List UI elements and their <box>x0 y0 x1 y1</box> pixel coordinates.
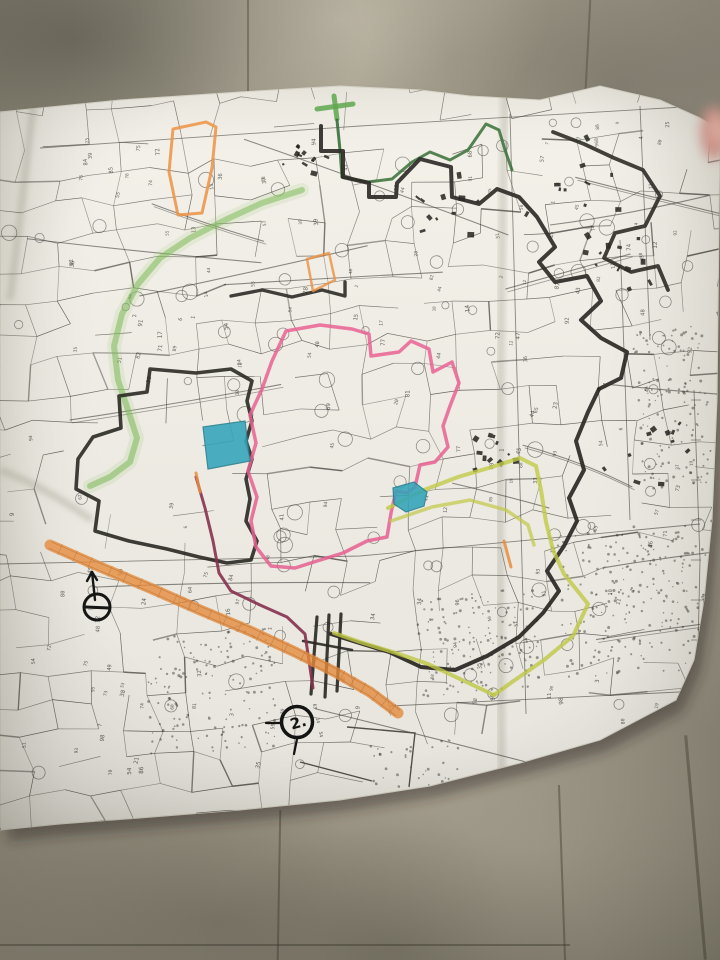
svg-text:93: 93 <box>74 747 81 753</box>
svg-text:92: 92 <box>565 317 571 324</box>
svg-text:54: 54 <box>598 440 604 446</box>
svg-text:94: 94 <box>323 501 329 507</box>
svg-text:57: 57 <box>262 220 268 226</box>
svg-text:12: 12 <box>443 507 450 514</box>
svg-text:48: 48 <box>95 626 102 633</box>
svg-text:14: 14 <box>464 304 472 312</box>
svg-text:55: 55 <box>165 230 171 236</box>
svg-text:78: 78 <box>124 173 130 179</box>
svg-text:70: 70 <box>108 769 114 775</box>
svg-text:86: 86 <box>138 766 145 774</box>
svg-text:39: 39 <box>313 218 320 226</box>
svg-text:39: 39 <box>169 502 176 509</box>
svg-text:31: 31 <box>495 233 502 240</box>
svg-text:32: 32 <box>703 686 710 695</box>
svg-text:72: 72 <box>46 645 53 652</box>
svg-text:94: 94 <box>28 435 35 441</box>
svg-text:80: 80 <box>61 591 67 597</box>
svg-text:2: 2 <box>132 314 138 318</box>
green-cross-v <box>334 96 337 119</box>
svg-text:49: 49 <box>107 664 114 671</box>
svg-text:4: 4 <box>709 730 715 734</box>
svg-text:85: 85 <box>108 166 115 174</box>
svg-text:95: 95 <box>90 686 96 692</box>
svg-text:68: 68 <box>594 138 600 144</box>
svg-text:69: 69 <box>326 402 332 410</box>
svg-text:10: 10 <box>235 390 241 396</box>
svg-text:14: 14 <box>203 291 210 298</box>
svg-text:80: 80 <box>620 718 626 724</box>
svg-text:93: 93 <box>535 568 542 575</box>
svg-text:61: 61 <box>541 590 548 597</box>
svg-text:37: 37 <box>262 177 269 184</box>
svg-text:12: 12 <box>652 241 659 249</box>
svg-text:98: 98 <box>100 734 107 742</box>
svg-text:19: 19 <box>654 703 661 710</box>
svg-text:82: 82 <box>596 276 602 282</box>
svg-text:35: 35 <box>477 662 484 669</box>
svg-text:23: 23 <box>553 401 560 409</box>
svg-text:26: 26 <box>715 724 720 731</box>
svg-text:74: 74 <box>591 225 598 232</box>
svg-text:71: 71 <box>158 345 165 352</box>
svg-text:39: 39 <box>88 152 94 159</box>
svg-text:51: 51 <box>22 742 28 748</box>
svg-text:64: 64 <box>188 587 194 593</box>
svg-text:28: 28 <box>413 250 419 256</box>
svg-text:57: 57 <box>539 156 546 163</box>
svg-text:55: 55 <box>250 281 256 287</box>
svg-text:16: 16 <box>226 608 233 616</box>
svg-text:74: 74 <box>148 180 154 186</box>
teal-parcel-1 <box>203 421 250 469</box>
svg-text:25: 25 <box>665 121 671 127</box>
svg-text:3: 3 <box>595 679 601 683</box>
svg-text:47: 47 <box>516 332 522 340</box>
svg-text:40: 40 <box>315 341 321 348</box>
svg-text:74: 74 <box>626 243 632 251</box>
svg-text:91: 91 <box>468 176 474 182</box>
svg-text:77: 77 <box>456 446 462 453</box>
svg-text:81: 81 <box>405 390 411 398</box>
svg-text:12: 12 <box>522 279 528 285</box>
svg-text:32: 32 <box>197 670 204 677</box>
svg-text:15: 15 <box>353 314 360 322</box>
svg-text:55: 55 <box>115 192 122 199</box>
svg-text:54: 54 <box>307 352 314 359</box>
svg-text:85: 85 <box>488 496 494 502</box>
svg-text:36: 36 <box>523 356 529 363</box>
svg-text:18: 18 <box>432 306 437 312</box>
svg-text:72: 72 <box>154 147 162 155</box>
svg-text:88: 88 <box>594 124 601 131</box>
svg-text:9: 9 <box>10 512 16 516</box>
svg-text:59: 59 <box>270 723 276 729</box>
svg-text:71: 71 <box>663 531 669 537</box>
svg-text:89: 89 <box>172 345 179 352</box>
photo-of-annotated-survey-map: 1995139542554458439847551737798628323561… <box>0 0 720 960</box>
svg-text:81: 81 <box>192 703 199 710</box>
svg-text:93: 93 <box>552 450 559 456</box>
svg-text:48: 48 <box>640 309 646 316</box>
svg-text:17: 17 <box>378 320 384 326</box>
svg-text:19: 19 <box>508 478 513 484</box>
svg-text:7: 7 <box>98 723 104 726</box>
svg-text:36: 36 <box>70 260 77 268</box>
svg-text:75: 75 <box>136 145 143 152</box>
svg-text:44: 44 <box>206 267 212 273</box>
svg-text:54: 54 <box>224 322 230 330</box>
svg-text:41: 41 <box>279 514 285 521</box>
svg-text:17: 17 <box>157 331 164 339</box>
svg-text:76: 76 <box>79 175 85 181</box>
svg-text:43: 43 <box>576 287 582 294</box>
svg-text:91: 91 <box>138 319 145 327</box>
svg-text:54: 54 <box>31 658 38 665</box>
svg-text:94: 94 <box>453 642 459 648</box>
svg-text:94: 94 <box>312 138 318 145</box>
svg-text:74: 74 <box>140 703 146 709</box>
svg-text:6: 6 <box>618 427 624 431</box>
svg-text:36: 36 <box>218 173 224 180</box>
svg-text:77: 77 <box>381 338 387 346</box>
svg-text:44: 44 <box>436 352 443 359</box>
svg-text:643: 643 <box>705 684 710 692</box>
svg-text:92: 92 <box>687 347 694 354</box>
svg-text:24: 24 <box>141 597 148 605</box>
svg-text:35: 35 <box>73 346 80 353</box>
svg-text:48: 48 <box>348 268 354 274</box>
svg-text:92: 92 <box>672 230 678 236</box>
svg-text:54: 54 <box>127 767 133 775</box>
svg-text:72: 72 <box>495 332 501 339</box>
svg-text:358: 358 <box>703 668 708 676</box>
svg-text:60: 60 <box>170 704 176 710</box>
svg-text:3: 3 <box>229 713 235 717</box>
paper-map: 1995139542554458439847551737798628323561… <box>0 0 720 960</box>
